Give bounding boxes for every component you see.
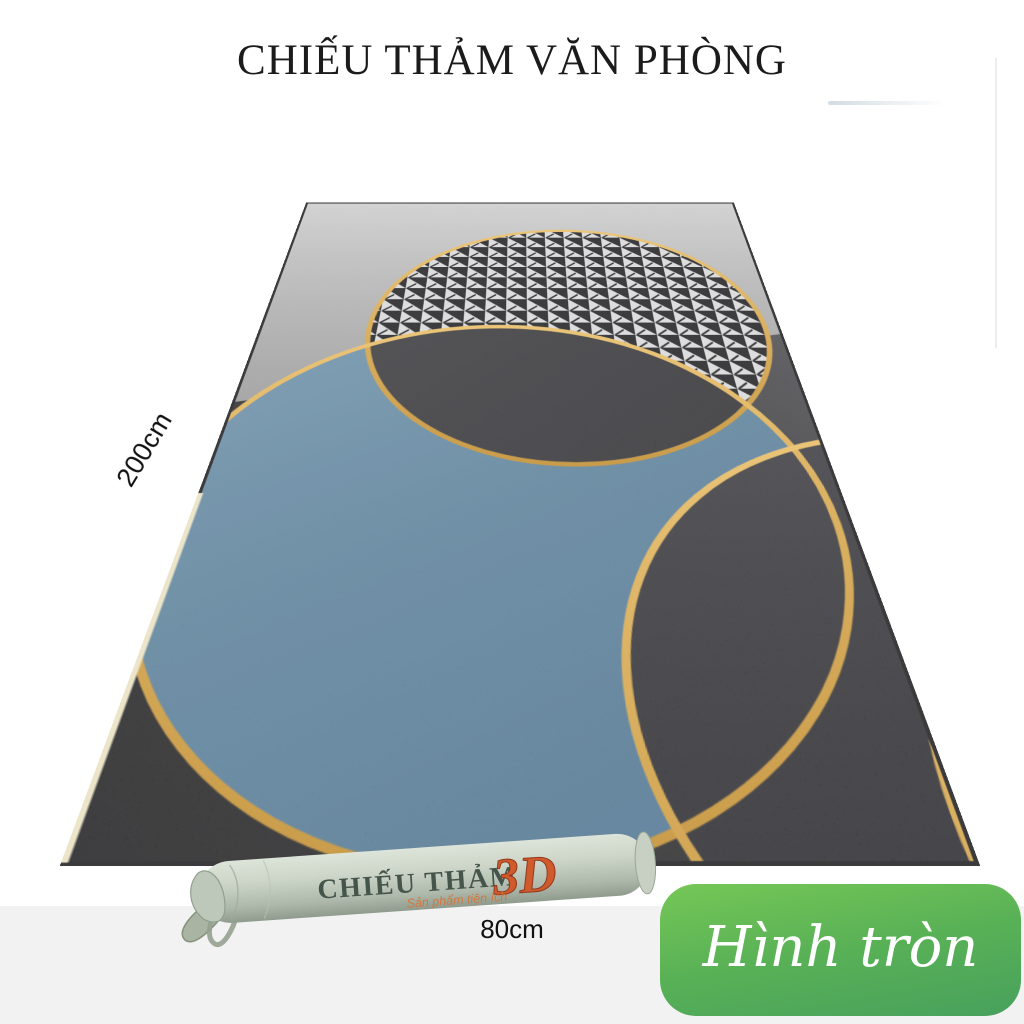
background-edge-shadow xyxy=(995,58,997,348)
carpet-texture xyxy=(60,203,980,866)
background-smudge xyxy=(828,101,946,105)
rug-design xyxy=(60,203,980,866)
variant-shape-button[interactable]: Hình tròn xyxy=(660,884,1021,1016)
rug-product-image xyxy=(60,203,980,866)
width-dimension-label: 80cm xyxy=(412,914,612,945)
length-dimension-label: 200cm xyxy=(110,407,178,492)
page-title: CHIẾU THẢM VĂN PHÒNG xyxy=(0,36,1024,85)
